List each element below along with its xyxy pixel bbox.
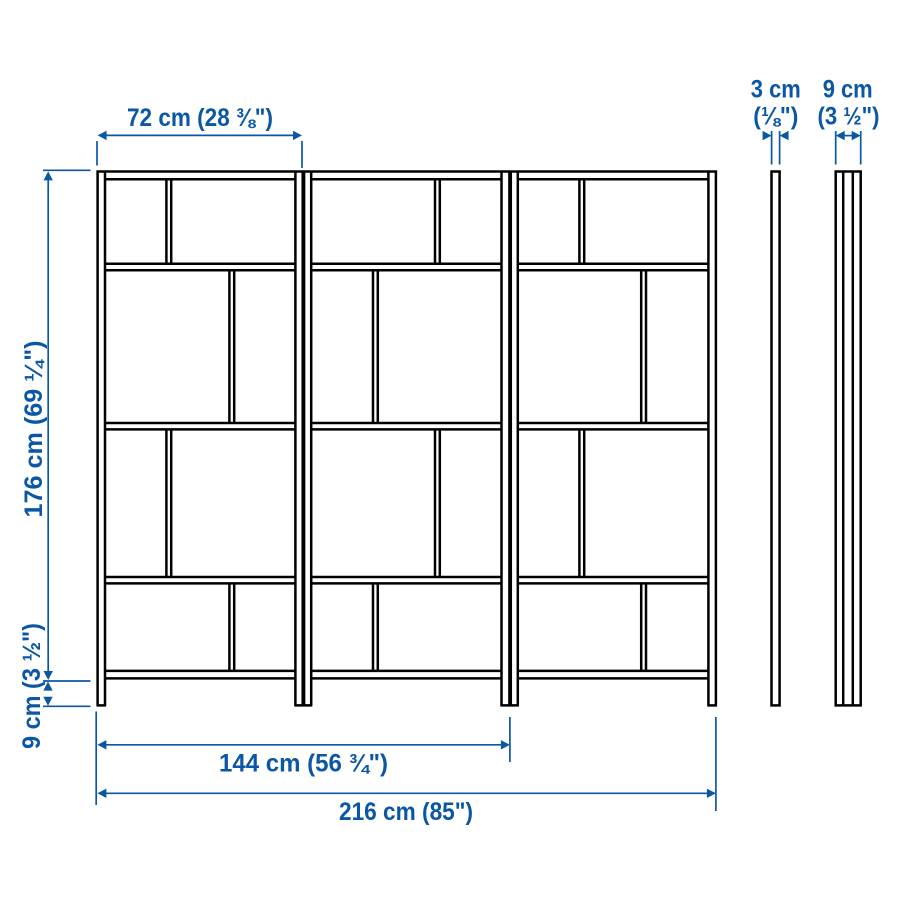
svg-text:72 cm (28 ⅜"): 72 cm (28 ⅜") — [127, 104, 273, 132]
svg-text:9 cm: 9 cm — [823, 76, 873, 104]
svg-text:216 cm (85"): 216 cm (85") — [339, 798, 473, 826]
svg-text:144 cm (56 ¾"): 144 cm (56 ¾") — [219, 750, 388, 778]
svg-text:176 cm (69 ¼"): 176 cm (69 ¼") — [20, 341, 48, 518]
svg-text:9 cm (3 ½"): 9 cm (3 ½") — [18, 623, 46, 749]
svg-text:(⅛"): (⅛") — [753, 103, 798, 131]
svg-text:3 cm: 3 cm — [751, 76, 801, 104]
svg-text:(3 ½"): (3 ½") — [818, 103, 880, 131]
